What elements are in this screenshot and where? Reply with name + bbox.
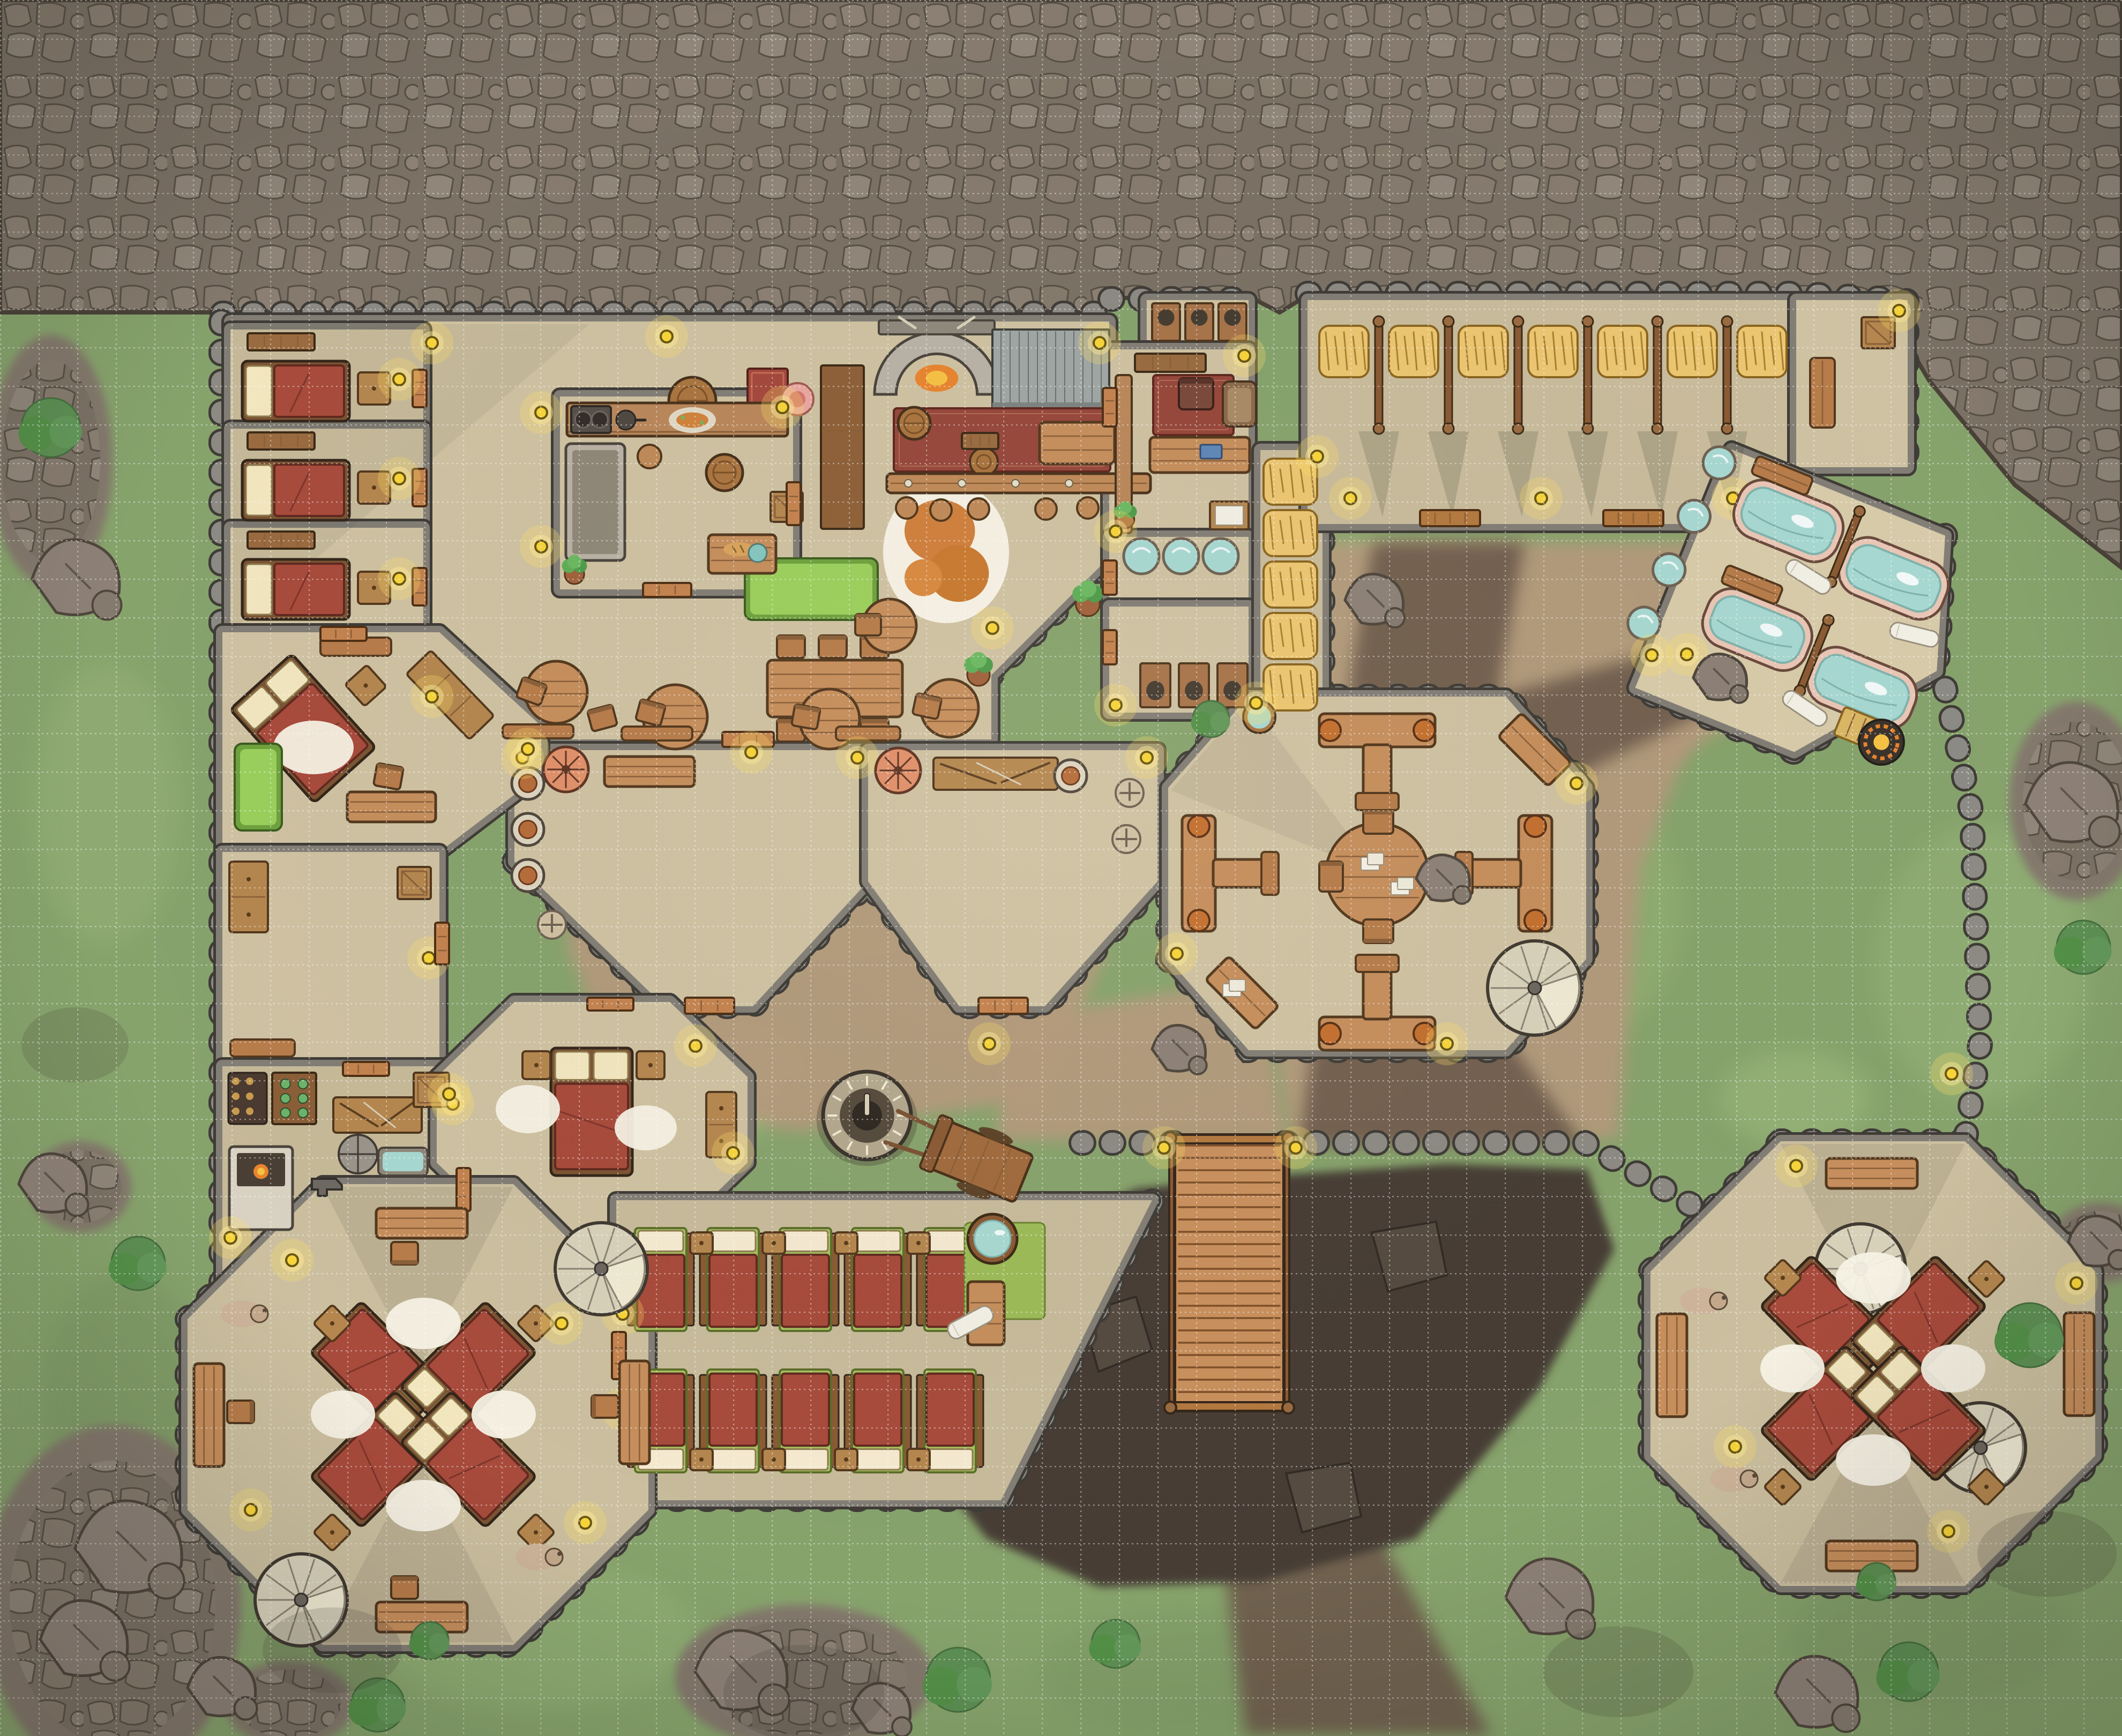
fortress-inn-battle-map [0, 0, 2122, 1736]
battle-map-canvas [0, 0, 2122, 1736]
vignette [0, 0, 2122, 1736]
